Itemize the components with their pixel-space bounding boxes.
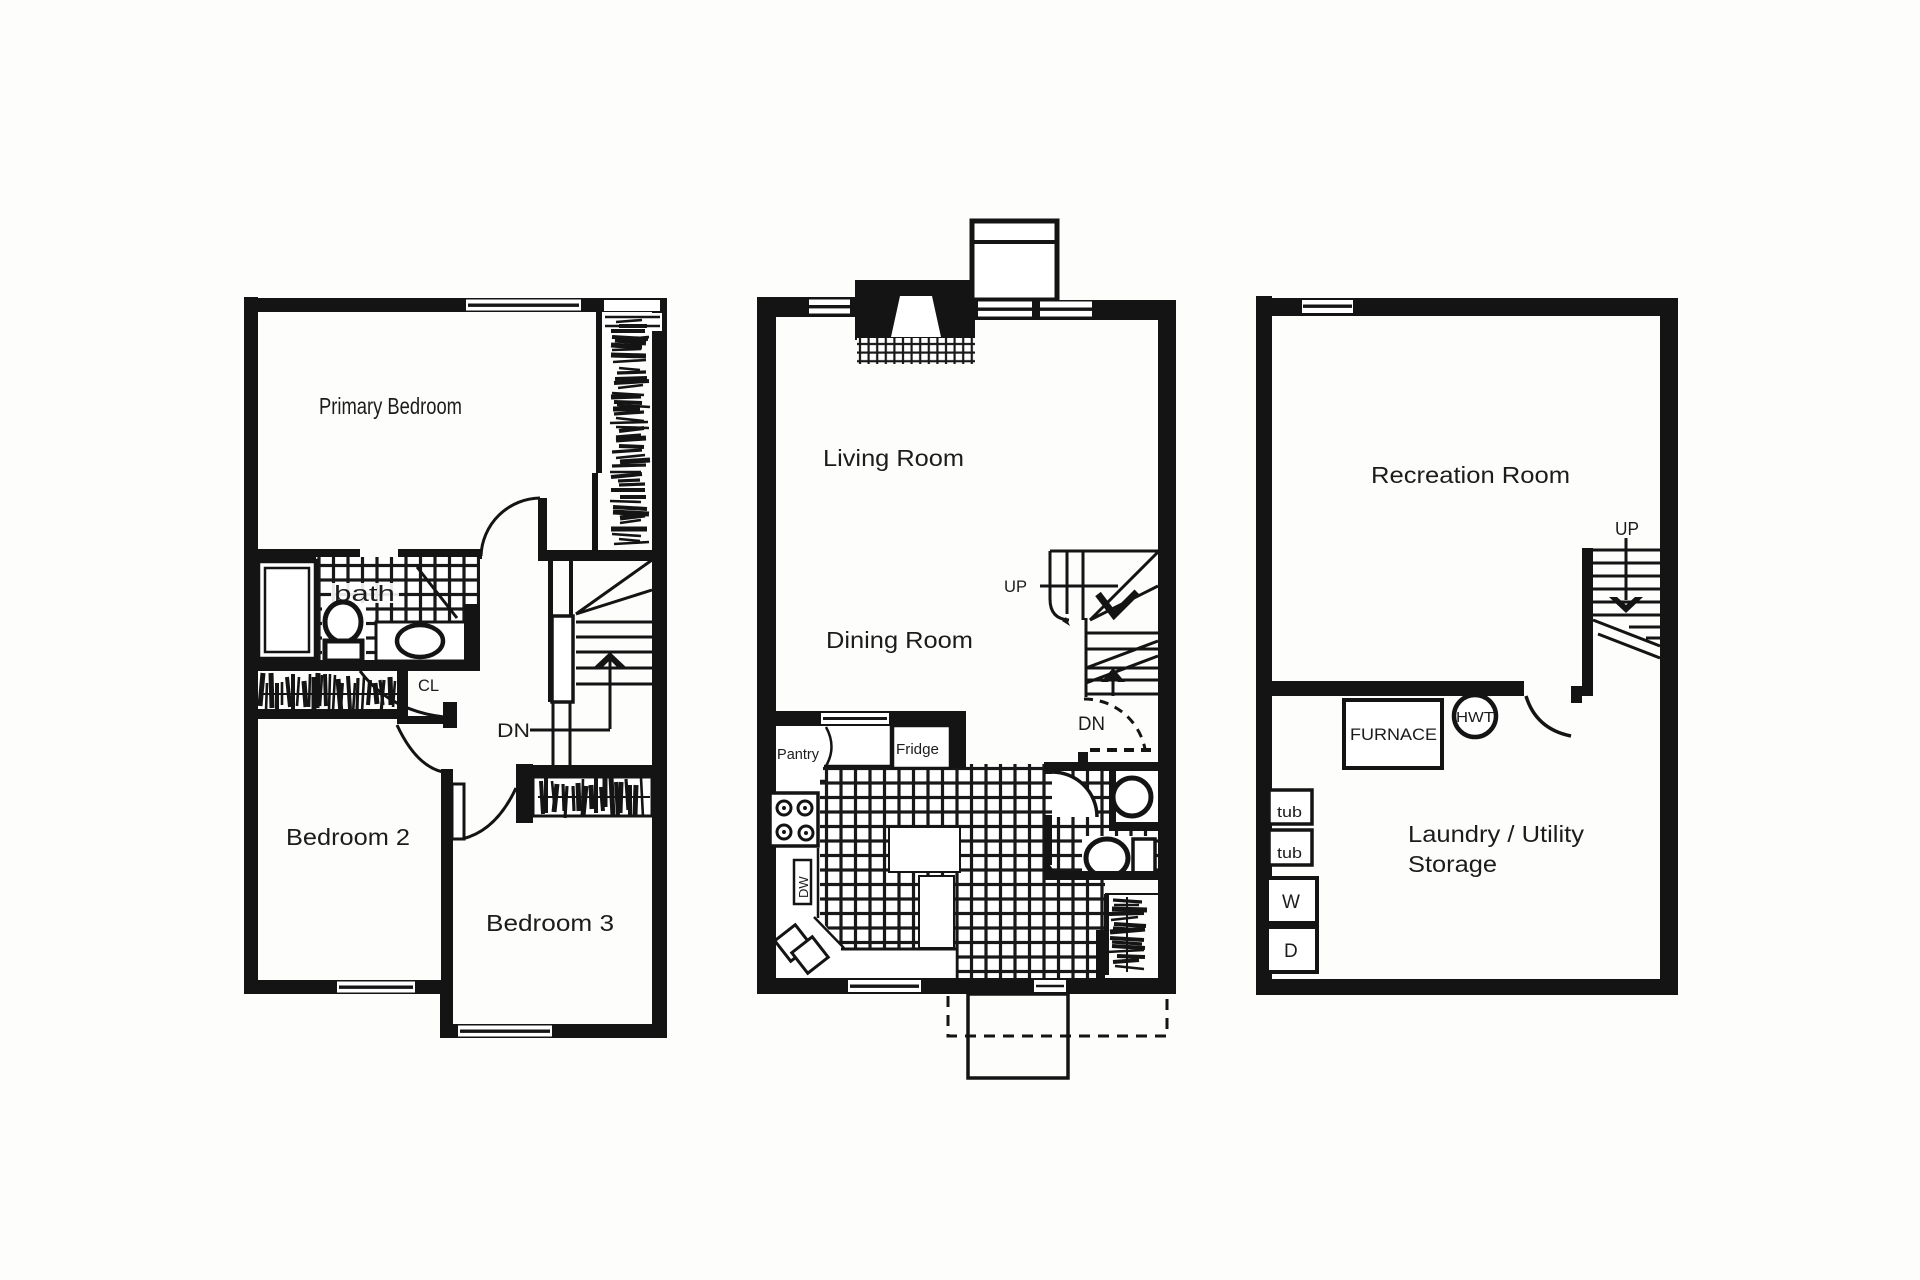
svg-text:Pantry: Pantry bbox=[777, 746, 819, 763]
svg-text:HWT: HWT bbox=[1456, 709, 1494, 726]
svg-text:DN: DN bbox=[1078, 714, 1105, 735]
svg-text:Laundry / Utility: Laundry / Utility bbox=[1408, 821, 1585, 847]
svg-text:Dining Room: Dining Room bbox=[826, 627, 973, 653]
svg-text:Primary Bedroom: Primary Bedroom bbox=[319, 393, 462, 419]
svg-text:Living Room: Living Room bbox=[823, 445, 964, 471]
svg-text:UP: UP bbox=[1004, 577, 1027, 596]
svg-text:D: D bbox=[1284, 941, 1298, 962]
svg-text:DW: DW bbox=[796, 876, 811, 898]
svg-text:tub: tub bbox=[1277, 804, 1302, 821]
svg-text:DN: DN bbox=[497, 721, 530, 742]
svg-text:Bedroom 3: Bedroom 3 bbox=[486, 910, 614, 936]
svg-text:CL: CL bbox=[418, 676, 439, 695]
svg-text:Fridge: Fridge bbox=[896, 741, 939, 758]
svg-text:Bedroom 2: Bedroom 2 bbox=[286, 824, 410, 850]
svg-text:FURNACE: FURNACE bbox=[1350, 725, 1437, 744]
svg-text:W: W bbox=[1282, 892, 1300, 913]
svg-text:UP: UP bbox=[1615, 519, 1639, 539]
svg-text:Storage: Storage bbox=[1408, 851, 1497, 877]
svg-text:Recreation Room: Recreation Room bbox=[1371, 462, 1570, 488]
svg-text:tub: tub bbox=[1277, 845, 1302, 862]
